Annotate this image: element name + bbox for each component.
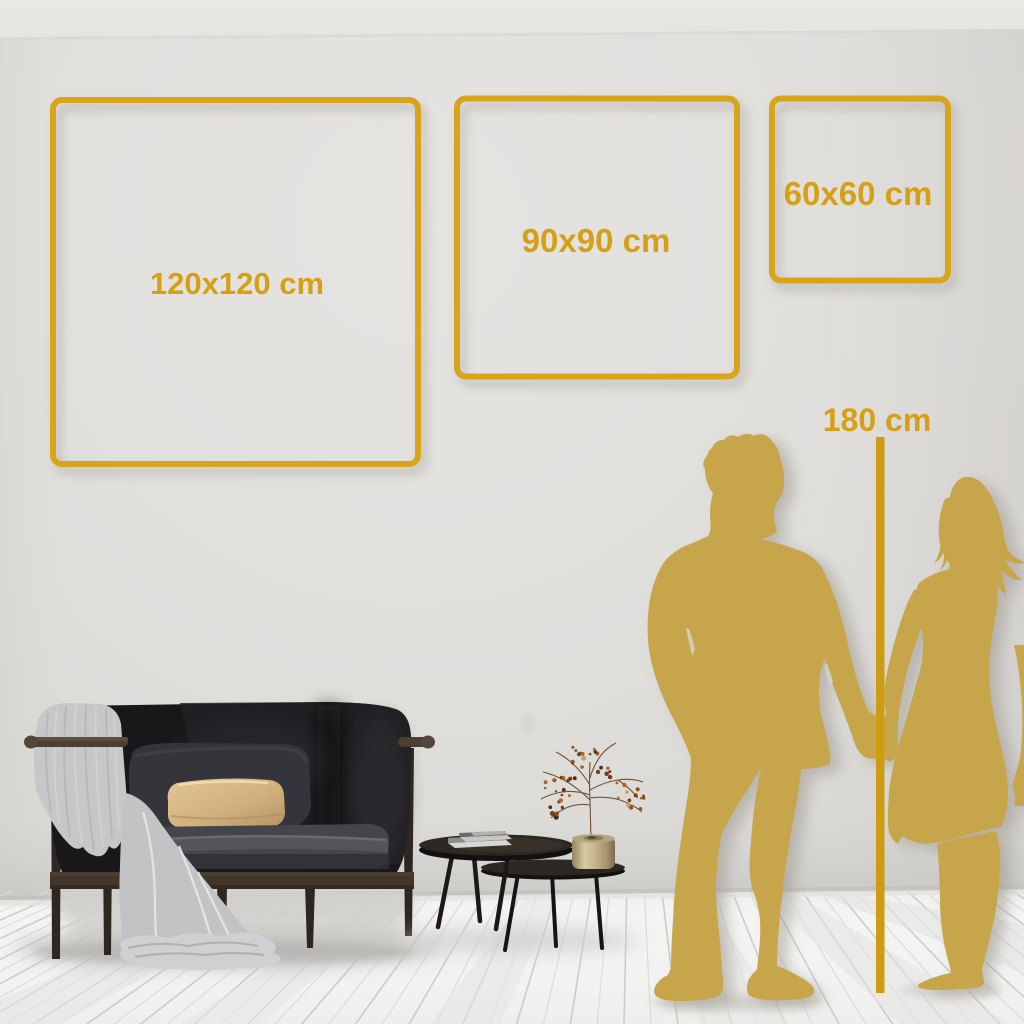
svg-text:180 cm: 180 cm [823, 402, 932, 438]
svg-text:120x120 cm: 120x120 cm [150, 266, 324, 301]
svg-text:90x90 cm: 90x90 cm [522, 222, 671, 259]
svg-text:60x60 cm: 60x60 cm [784, 175, 933, 212]
